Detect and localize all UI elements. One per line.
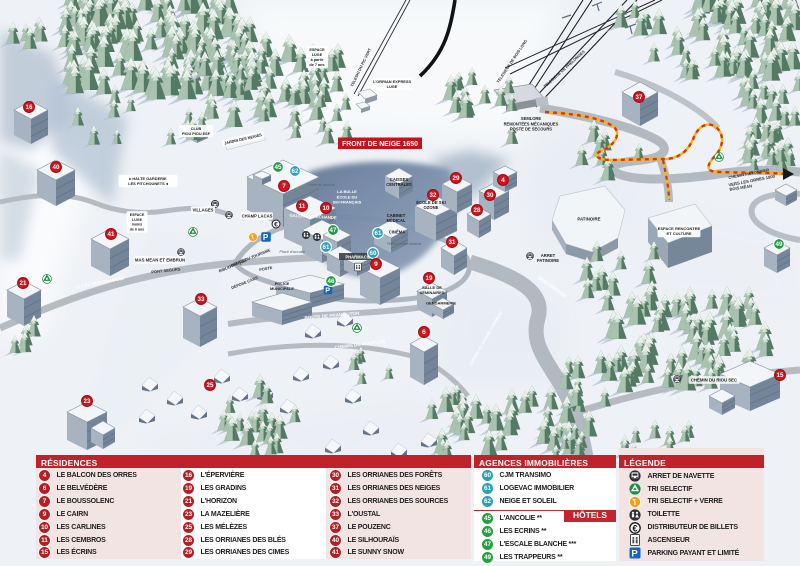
svg-text:SKI FRANÇAIS: SKI FRANÇAIS bbox=[333, 200, 362, 205]
svg-text:à partir: à partir bbox=[311, 58, 324, 62]
svg-text:CAISSES: CAISSES bbox=[390, 177, 409, 182]
svg-text:MAS MEAN ET EMBRUN: MAS MEAN ET EMBRUN bbox=[135, 258, 185, 263]
svg-text:SÉMINAIRES: SÉMINAIRES bbox=[420, 290, 445, 295]
svg-text:MÉDICAL: MÉDICAL bbox=[386, 218, 406, 223]
svg-text:PATINOIRE: PATINOIRE bbox=[537, 258, 559, 263]
svg-text:P: P bbox=[631, 549, 638, 559]
svg-text:REMONTÉES MÉCANIQUES: REMONTÉES MÉCANIQUES bbox=[504, 121, 559, 126]
svg-text:LES PITCHOUNETS ◂: LES PITCHOUNETS ◂ bbox=[128, 181, 169, 186]
svg-text:19: 19 bbox=[426, 275, 433, 282]
svg-text:46: 46 bbox=[328, 278, 335, 285]
svg-text:21: 21 bbox=[20, 280, 27, 287]
svg-text:ESPACE: ESPACE bbox=[130, 213, 145, 217]
svg-text:GENDARMERIE: GENDARMERIE bbox=[426, 300, 456, 305]
svg-text:33: 33 bbox=[198, 296, 205, 303]
svg-text:11: 11 bbox=[299, 203, 306, 210]
svg-text:9: 9 bbox=[374, 261, 378, 268]
svg-text:CLUB: CLUB bbox=[191, 127, 202, 131]
svg-text:10: 10 bbox=[323, 205, 330, 212]
svg-text:€: € bbox=[632, 522, 638, 533]
svg-text:28: 28 bbox=[474, 207, 481, 214]
svg-text:30: 30 bbox=[487, 192, 494, 199]
svg-text:45: 45 bbox=[275, 164, 282, 171]
svg-text:61: 61 bbox=[375, 230, 382, 237]
svg-text:Place d'accueil: Place d'accueil bbox=[279, 250, 304, 254]
svg-text:41: 41 bbox=[108, 231, 115, 238]
svg-text:15: 15 bbox=[777, 372, 784, 379]
svg-text:Place Comte médical: Place Comte médical bbox=[387, 242, 421, 246]
svg-text:Place du festival: Place du festival bbox=[307, 183, 335, 187]
svg-text:PATINOIRE: PATINOIRE bbox=[577, 217, 600, 222]
svg-text:25: 25 bbox=[207, 382, 214, 389]
svg-text:62: 62 bbox=[292, 168, 299, 175]
svg-text:LUGE: LUGE bbox=[387, 84, 398, 89]
svg-text:CHAMP LACAS: CHAMP LACAS bbox=[242, 213, 273, 218]
svg-text:49: 49 bbox=[776, 241, 783, 248]
svg-text:ARRET: ARRET bbox=[541, 253, 556, 258]
svg-text:moins: moins bbox=[132, 223, 143, 227]
svg-text:6: 6 bbox=[422, 329, 426, 336]
svg-text:61: 61 bbox=[323, 244, 330, 251]
svg-text:37: 37 bbox=[636, 94, 643, 101]
svg-text:de 6 ans: de 6 ans bbox=[130, 227, 144, 231]
svg-text:SEMLORE: SEMLORE bbox=[521, 116, 542, 121]
svg-text:47: 47 bbox=[330, 227, 337, 234]
svg-text:23: 23 bbox=[84, 398, 91, 405]
svg-text:OZONE: OZONE bbox=[424, 205, 439, 210]
svg-text:40: 40 bbox=[53, 164, 60, 171]
svg-text:16: 16 bbox=[26, 104, 33, 111]
svg-text:CABINET: CABINET bbox=[387, 213, 406, 218]
svg-text:de 7 ans: de 7 ans bbox=[309, 63, 324, 67]
svg-text:60: 60 bbox=[370, 250, 377, 257]
svg-text:LUGE: LUGE bbox=[132, 218, 143, 222]
svg-text:7: 7 bbox=[282, 183, 286, 190]
svg-text:VILLAGES: VILLAGES bbox=[193, 207, 214, 212]
svg-text:€: € bbox=[274, 222, 278, 229]
svg-text:CHEMIN DU RIOU SEC: CHEMIN DU RIOU SEC bbox=[691, 378, 737, 383]
svg-text:POSTE DE SECOURS: POSTE DE SECOURS bbox=[510, 127, 552, 132]
svg-text:P: P bbox=[263, 233, 269, 242]
svg-text:ESPACE: ESPACE bbox=[309, 48, 325, 52]
svg-text:29: 29 bbox=[453, 175, 460, 182]
svg-text:ET CULTURE: ET CULTURE bbox=[666, 231, 691, 236]
svg-text:LUGE: LUGE bbox=[312, 53, 323, 57]
svg-text:FRONT DE NEIGE 1650: FRONT DE NEIGE 1650 bbox=[342, 141, 418, 148]
svg-text:CINÉMA: CINÉMA bbox=[389, 229, 406, 234]
svg-text:PIOU PIOU ESF: PIOU PIOU ESF bbox=[182, 132, 211, 136]
svg-text:31: 31 bbox=[449, 239, 456, 246]
svg-text:CENTRALES: CENTRALES bbox=[386, 182, 412, 187]
svg-text:32: 32 bbox=[430, 192, 437, 199]
svg-text:4: 4 bbox=[501, 177, 505, 184]
svg-text:P: P bbox=[325, 286, 330, 295]
svg-text:PHARMACIE: PHARMACIE bbox=[345, 254, 371, 259]
svg-text:MUNICIPALE: MUNICIPALE bbox=[270, 286, 294, 291]
